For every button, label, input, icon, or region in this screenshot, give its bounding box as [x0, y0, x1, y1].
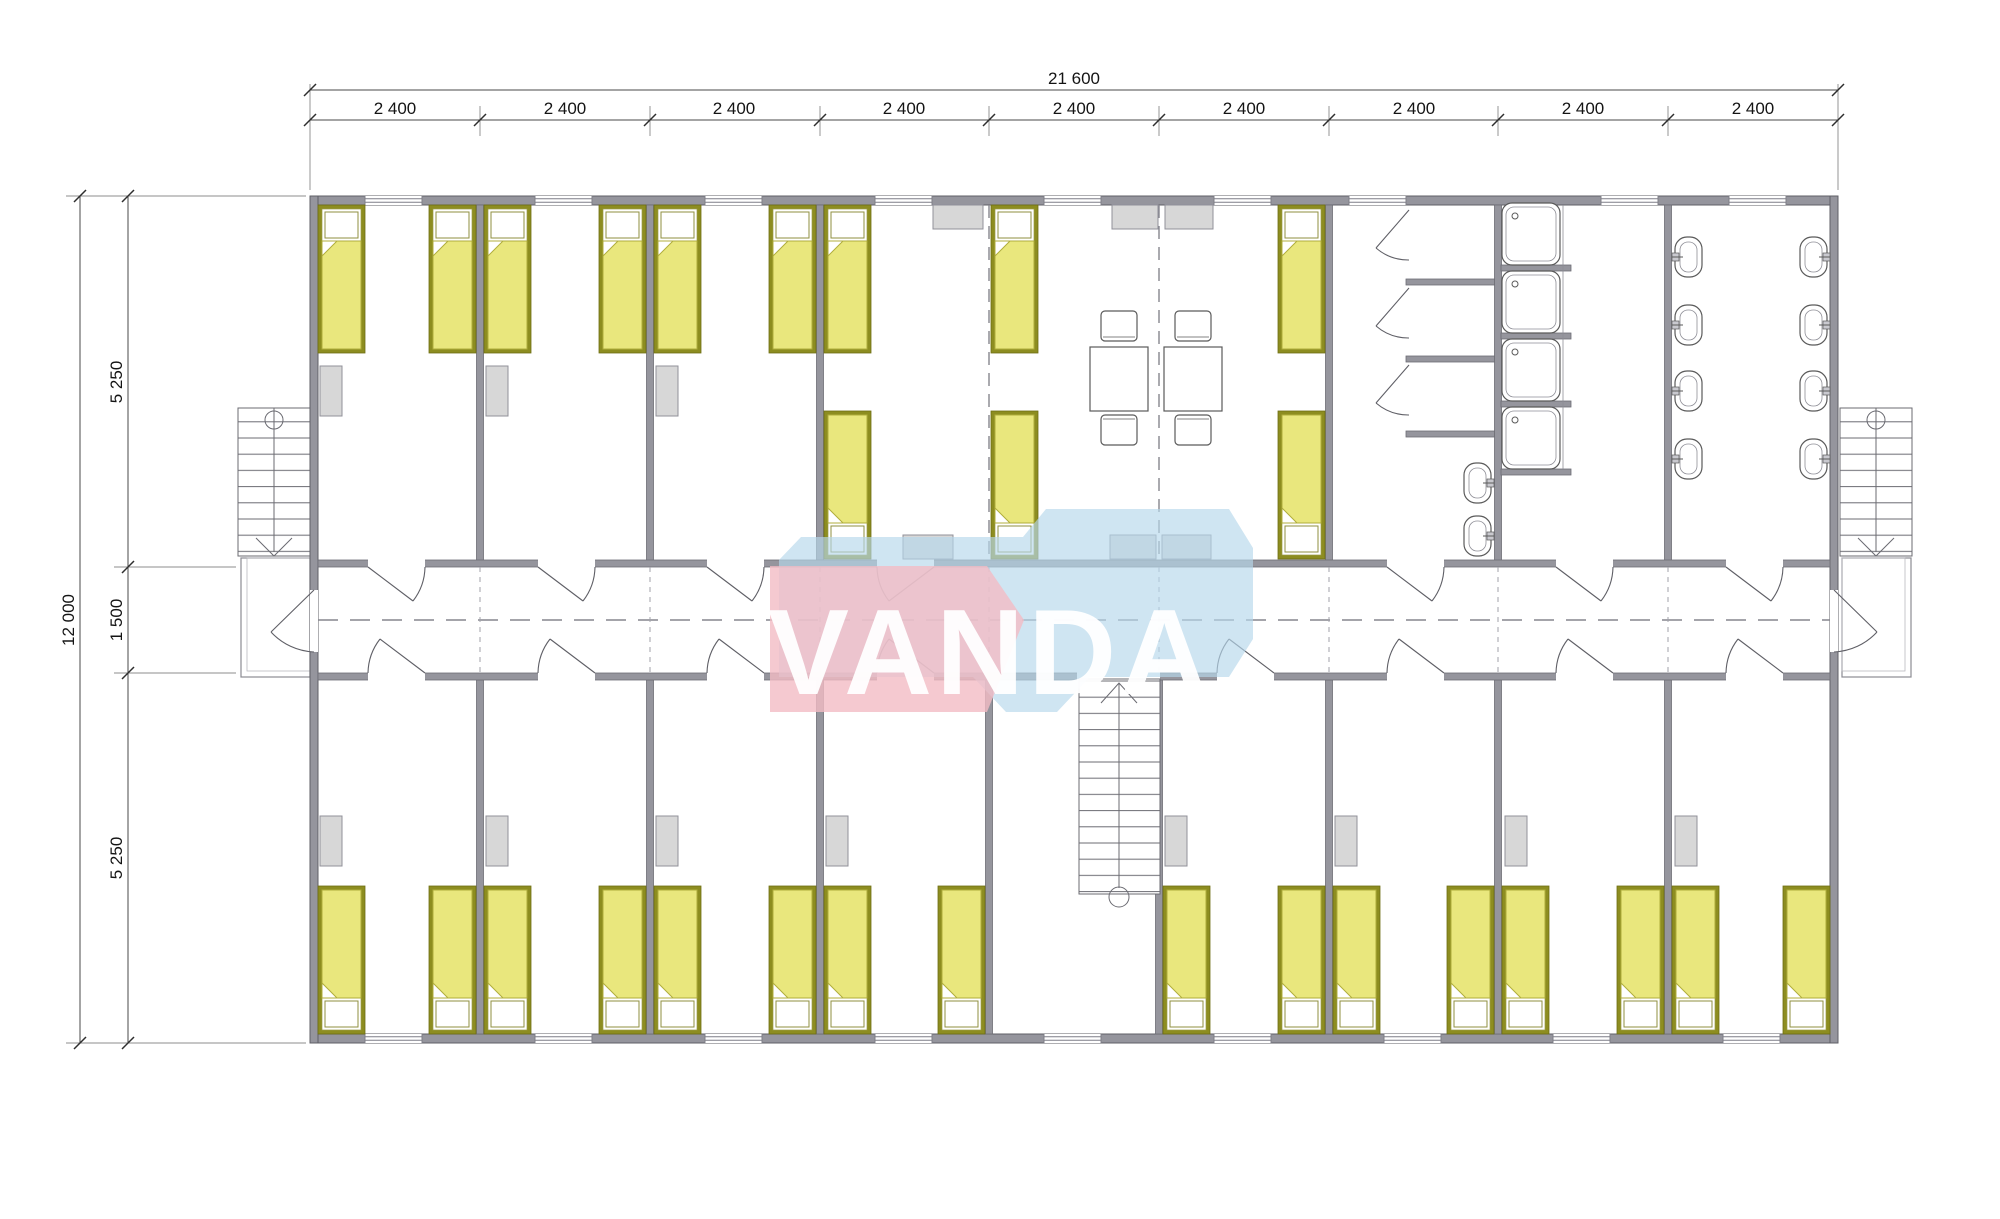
sink [1672, 305, 1702, 345]
watermark-text: VANDA [768, 584, 1213, 720]
bed [429, 205, 476, 353]
wardrobe [320, 366, 342, 416]
bed [769, 205, 816, 353]
kitchen-cabinet [1165, 205, 1213, 229]
bed [1783, 886, 1830, 1034]
bed [824, 411, 871, 559]
toilet-stalls [1376, 210, 1495, 556]
bed [1333, 886, 1380, 1034]
bed [429, 886, 476, 1034]
dim-module-1: 2 400 [374, 99, 417, 118]
bed [991, 205, 1038, 353]
floor-plan-drawing: 21 600 2 400 2 400 2 400 2 400 2 400 2 4… [0, 0, 2000, 1219]
dim-overall-width: 21 600 [1048, 69, 1100, 88]
wardrobe [320, 816, 342, 866]
entrance-door-left [271, 590, 314, 652]
sink [1800, 439, 1830, 479]
bed [1278, 886, 1325, 1034]
dim-module-6: 2 400 [1223, 99, 1266, 118]
dimension-left: 12 000 5 250 1 500 5 250 [59, 190, 306, 1049]
bed [1278, 411, 1325, 559]
entrance-door-right [1834, 590, 1877, 652]
bed [1163, 886, 1210, 1034]
sink [1464, 463, 1494, 503]
bed [654, 205, 701, 353]
bed [1278, 205, 1325, 353]
sink [1800, 371, 1830, 411]
dim-module-9: 2 400 [1732, 99, 1775, 118]
corridor-end-opening-right [1830, 590, 1838, 652]
wardrobe [486, 816, 508, 866]
table-with-chairs [1164, 311, 1222, 445]
windows-bottom [365, 1034, 1780, 1043]
bed [1617, 886, 1664, 1034]
entrance-landing-left [241, 558, 310, 677]
dim-module-3: 2 400 [713, 99, 756, 118]
watermark-logo: VANDA [768, 509, 1253, 720]
table-with-chairs [1090, 311, 1148, 445]
kitchen-cabinet [1112, 205, 1158, 229]
sink [1464, 516, 1494, 556]
dim-module-2: 2 400 [544, 99, 587, 118]
sink [1800, 305, 1830, 345]
external-stair-right [1840, 408, 1912, 677]
bed [599, 205, 646, 353]
shower-room [1501, 203, 1571, 475]
toilet-stall-door [1376, 210, 1409, 260]
bed [938, 886, 985, 1034]
toilet-stall-door [1376, 365, 1409, 415]
shower-cabin [1502, 339, 1560, 401]
dim-lower-depth: 5 250 [107, 837, 126, 880]
bed [484, 205, 531, 353]
sink [1672, 371, 1702, 411]
floor-plan-page: 21 600 2 400 2 400 2 400 2 400 2 400 2 4… [0, 0, 2000, 1219]
wardrobe [1335, 816, 1357, 866]
shower-cabin [1502, 203, 1560, 265]
bed [318, 886, 365, 1034]
corridor-end-opening-left [310, 590, 318, 652]
wardrobe [486, 366, 508, 416]
bed [1447, 886, 1494, 1034]
dining-tables [1090, 311, 1222, 445]
dim-upper-depth: 5 250 [107, 361, 126, 404]
wardrobe [1675, 816, 1697, 866]
bed [654, 886, 701, 1034]
dim-module-8: 2 400 [1562, 99, 1605, 118]
sink [1672, 439, 1702, 479]
dim-corridor-width: 1 500 [107, 599, 126, 642]
bed [824, 886, 871, 1034]
bed [484, 886, 531, 1034]
sink [1672, 237, 1702, 277]
dim-module-4: 2 400 [883, 99, 926, 118]
wardrobe [1165, 816, 1187, 866]
bed [769, 886, 816, 1034]
bed [599, 886, 646, 1034]
bed [824, 205, 871, 353]
washroom [1672, 237, 1830, 479]
wardrobe [1505, 816, 1527, 866]
wardrobe [826, 816, 848, 866]
dim-module-5: 2 400 [1053, 99, 1096, 118]
dimension-top: 21 600 2 400 2 400 2 400 2 400 2 400 2 4… [304, 69, 1844, 190]
wardrobe [656, 366, 678, 416]
sink [1800, 237, 1830, 277]
toilet-stall-door [1376, 288, 1409, 338]
dim-module-7: 2 400 [1393, 99, 1436, 118]
bed [318, 205, 365, 353]
external-stair-left [238, 408, 310, 677]
shower-cabin [1502, 407, 1560, 469]
wardrobe [656, 816, 678, 866]
shower-cabin [1502, 271, 1560, 333]
entrance-landing-right [1842, 558, 1911, 677]
dim-overall-height: 12 000 [59, 594, 78, 646]
bed [1502, 886, 1549, 1034]
bed [1672, 886, 1719, 1034]
kitchen-cabinet [933, 205, 983, 229]
